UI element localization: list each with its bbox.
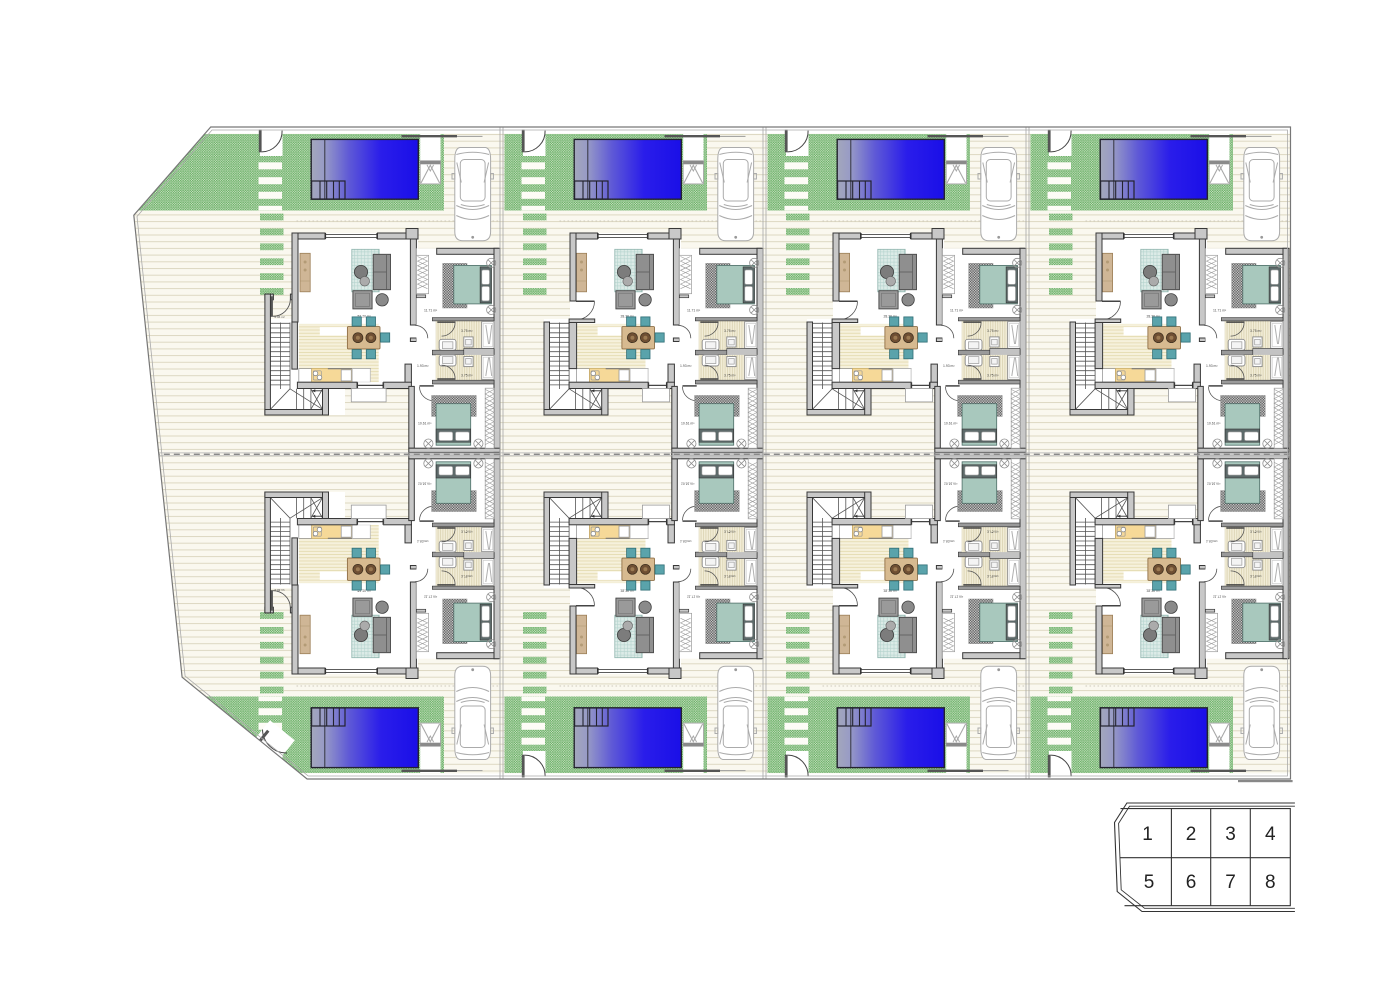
svg-text:1: 1 <box>1142 824 1153 845</box>
svg-text:5: 5 <box>1144 872 1155 893</box>
svg-text:4: 4 <box>1265 824 1276 845</box>
svg-text:2: 2 <box>1186 824 1197 845</box>
svg-text:3: 3 <box>1225 824 1236 845</box>
svg-text:7: 7 <box>1225 872 1236 893</box>
svg-text:8: 8 <box>1265 872 1276 893</box>
svg-text:6: 6 <box>1186 872 1197 893</box>
